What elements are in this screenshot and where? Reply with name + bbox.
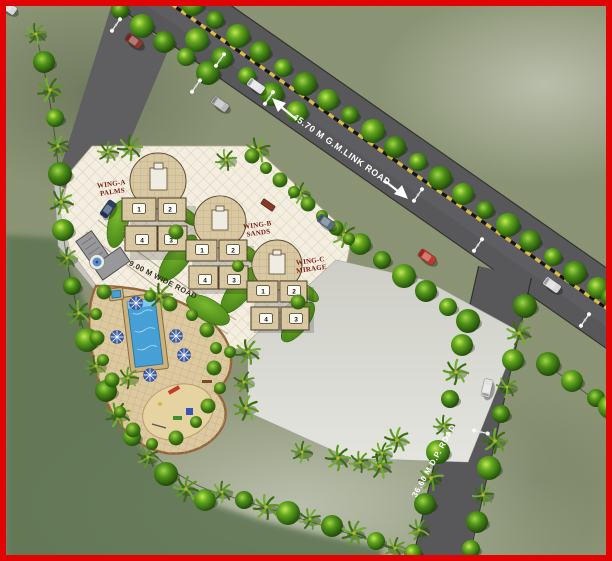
tree-icon [496, 213, 520, 237]
tree-icon [249, 41, 271, 63]
bush-icon [126, 423, 141, 438]
tree-icon [317, 89, 339, 111]
wing-b-building: 1 2 4 3 [186, 196, 254, 294]
tree-icon [274, 59, 292, 77]
svg-text:1: 1 [137, 206, 141, 213]
svg-text:4: 4 [140, 237, 144, 244]
svg-text:1: 1 [261, 288, 265, 295]
tree-icon [46, 109, 64, 127]
tree-icon [544, 248, 562, 266]
tree-icon [466, 511, 488, 533]
svg-text:1: 1 [200, 247, 204, 254]
tree-icon [206, 11, 224, 29]
bush-icon [200, 323, 215, 338]
bush-icon [97, 354, 109, 366]
tree-icon [321, 515, 343, 537]
tree-icon [276, 501, 300, 525]
tree-icon [536, 352, 560, 376]
tree-icon [341, 106, 359, 124]
svg-text:2: 2 [292, 288, 296, 295]
tree-icon [384, 136, 406, 158]
tree-icon [373, 251, 391, 269]
tree-icon [153, 31, 175, 53]
tree-icon [452, 183, 474, 205]
tree-icon [130, 14, 154, 38]
unit-plate: 1 [196, 245, 209, 255]
svg-text:2: 2 [168, 206, 172, 213]
bush-icon [224, 346, 236, 358]
site-plan-frame: 1 2 4 3 1 2 4 3 1 2 4 3 WING-A PALMS WIN… [0, 0, 612, 561]
bush-icon [288, 186, 300, 198]
tree-icon [477, 456, 501, 480]
bush-icon [201, 399, 216, 414]
bush-icon [301, 197, 316, 212]
unit-plate: 2 [227, 245, 240, 255]
bush-icon [144, 290, 156, 302]
bush-icon [190, 416, 202, 428]
tree-icon [226, 24, 250, 48]
tree-icon [367, 532, 385, 550]
umbrella-icon [130, 297, 143, 310]
tree-icon [456, 309, 480, 333]
svg-text:3: 3 [232, 277, 236, 284]
unit-plate: 1 [257, 286, 270, 296]
bush-icon [114, 406, 126, 418]
tree-icon [293, 72, 317, 96]
bush-icon [105, 373, 120, 388]
tree-icon [392, 264, 416, 288]
tree-icon [33, 51, 55, 73]
unit-plate: 4 [199, 275, 212, 285]
tree-icon [519, 230, 541, 252]
umbrella-icon [111, 331, 124, 344]
svg-text:3: 3 [294, 316, 298, 323]
bush-icon [169, 431, 184, 446]
bush-icon [90, 308, 102, 320]
tree-icon [154, 462, 178, 486]
unit-plate: 4 [136, 235, 149, 245]
unit-plate: 2 [288, 286, 301, 296]
tree-icon [476, 201, 494, 219]
bush-icon [169, 225, 184, 240]
tree-icon [52, 219, 74, 241]
tree-icon [177, 48, 195, 66]
bush-icon [214, 382, 226, 394]
bush-icon [210, 342, 222, 354]
unit-plate: 4 [260, 314, 273, 324]
bush-icon [260, 162, 272, 174]
tree-icon [415, 280, 437, 302]
bush-icon [207, 361, 222, 376]
svg-text:4: 4 [264, 316, 268, 323]
umbrella-icon [144, 369, 157, 382]
fountain [90, 255, 105, 270]
tree-icon [428, 166, 452, 190]
unit-plate: 3 [228, 275, 241, 285]
bush-icon [146, 438, 158, 450]
bush-icon [273, 173, 288, 188]
bush-icon [186, 309, 198, 321]
tree-icon [361, 119, 385, 143]
tree-icon [441, 390, 459, 408]
tree-icon [561, 370, 583, 392]
unit-plate: 1 [133, 204, 146, 214]
bush-icon [343, 233, 355, 245]
bush-icon [245, 149, 260, 164]
tree-icon [409, 153, 427, 171]
tree-icon [492, 405, 510, 423]
unit-plate: 2 [164, 204, 177, 214]
svg-text:4: 4 [203, 277, 207, 284]
bush-icon [232, 260, 244, 272]
unit-plate: 3 [290, 314, 303, 324]
tree-icon [502, 349, 524, 371]
tree-icon [451, 334, 473, 356]
bush-icon [90, 331, 105, 346]
tree-icon [48, 162, 72, 186]
bush-icon [163, 297, 178, 312]
bush-icon [97, 285, 112, 300]
umbrella-icon [170, 330, 183, 343]
tree-icon [439, 298, 457, 316]
bush-icon [291, 295, 306, 310]
tree-icon [563, 261, 587, 285]
tree-icon [513, 294, 537, 318]
tree-icon [235, 491, 253, 509]
umbrella-icon [178, 349, 191, 362]
svg-text:2: 2 [231, 247, 235, 254]
tree-icon [63, 277, 81, 295]
